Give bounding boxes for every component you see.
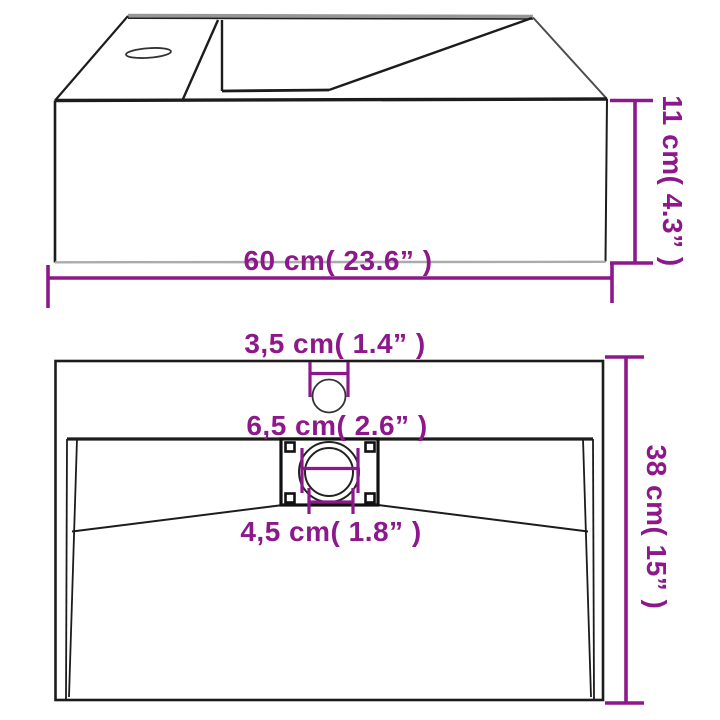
diagram-canvas: 60 cm( 23.6” ) 11 cm( 4.3” ) 3,5 cm( 1.4… (0, 0, 720, 720)
width-dimension-label: 60 cm( 23.6” ) (243, 245, 432, 276)
depth-dimension-label: 38 cm( 15” ) (641, 445, 672, 610)
sink-back-edge-highlight (128, 16, 533, 17)
drain-box-tab-top-right (366, 443, 375, 452)
drain-inner-dimension-label: 4,5 cm( 1.8” ) (240, 516, 421, 547)
sink-back-edge (128, 18, 533, 19)
faucet-hole-top-view (313, 380, 346, 413)
faucet-hole-dimension-label: 3,5 cm( 1.4” ) (244, 328, 425, 359)
drain-box-tab-top-left (286, 443, 295, 452)
basin-front-bottom-line (222, 90, 329, 91)
sink-front-top-edge (55, 99, 607, 101)
drain-outer-dimension-label: 6,5 cm( 2.6” ) (246, 410, 427, 441)
drain-box-tab-bottom-right (366, 494, 375, 503)
sink-dimension-diagram: 60 cm( 23.6” ) 11 cm( 4.3” ) 3,5 cm( 1.4… (0, 0, 720, 720)
drain-box-tab-bottom-left (286, 494, 295, 503)
basin-left-wall-outer (66, 439, 67, 699)
top-view: 3,5 cm( 1.4” ) 6,5 cm( 2.6” ) (56, 328, 673, 703)
basin-right-wall-outer (593, 439, 594, 699)
height-dimension-label: 11 cm( 4.3” ) (657, 95, 688, 266)
